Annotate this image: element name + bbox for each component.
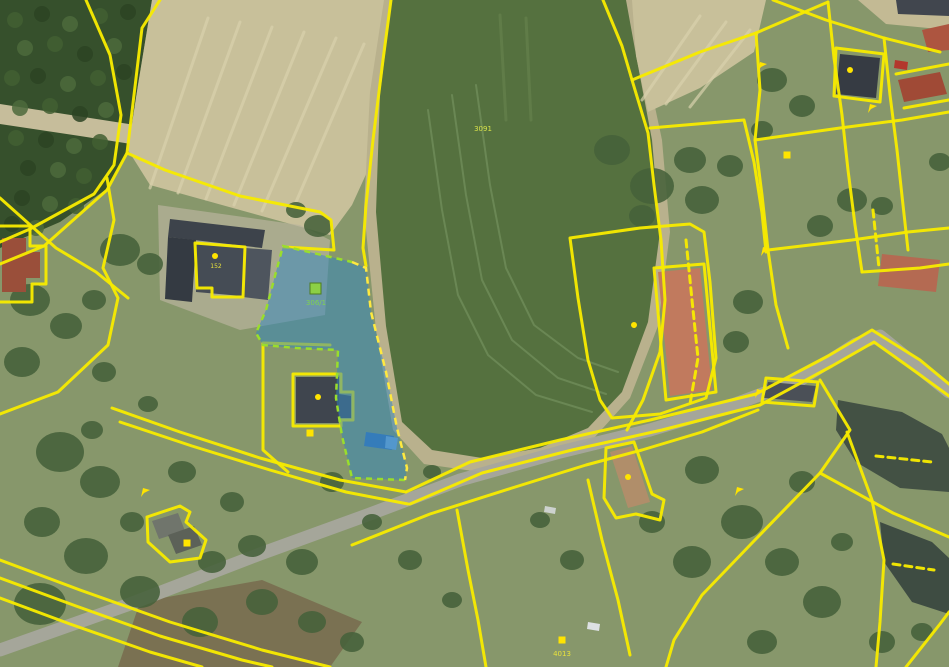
tree-canopy <box>246 589 278 615</box>
parcel-dot-icon <box>631 322 637 328</box>
tree-canopy <box>24 507 60 537</box>
farm-barn-west <box>165 237 196 302</box>
parcel-dot-icon <box>315 394 321 400</box>
forest-tree <box>38 132 54 148</box>
village-terracotta-row <box>878 254 940 292</box>
tree-canopy <box>594 135 630 165</box>
forest-tree <box>120 4 136 20</box>
forest-tree <box>116 64 132 80</box>
green-crop-field <box>376 0 660 458</box>
tree-canopy <box>733 290 763 314</box>
tree-canopy <box>717 155 743 177</box>
tree-canopy <box>803 586 841 618</box>
parcel-number-label: 4013 <box>553 650 571 658</box>
forest-tree <box>4 70 20 86</box>
farm-barn-east <box>243 248 272 300</box>
tree-canopy <box>629 205 655 227</box>
tree-canopy <box>64 538 108 574</box>
forest-tree <box>8 130 24 146</box>
tree-canopy <box>398 550 422 570</box>
parcel-square-icon <box>184 540 191 547</box>
tree-canopy <box>674 147 706 173</box>
tree-canopy <box>560 550 584 570</box>
forest-tree <box>30 68 46 84</box>
forest-tree <box>60 76 76 92</box>
cadastral-map-canvas[interactable]: 306/130914013152 <box>0 0 949 667</box>
forest-tree <box>76 168 92 184</box>
tree-canopy <box>137 253 163 275</box>
parcel-number-label: 3091 <box>474 125 492 133</box>
tree-canopy <box>789 95 815 117</box>
tree-canopy <box>80 466 120 498</box>
parcel-number-label: 152 <box>210 263 222 270</box>
forest-tree <box>77 46 93 62</box>
tree-canopy <box>81 421 103 439</box>
tree-canopy <box>4 347 40 377</box>
tree-canopy <box>530 512 550 528</box>
tree-canopy <box>442 592 462 608</box>
tree-canopy <box>869 631 895 653</box>
tree-canopy <box>220 492 244 512</box>
forest-tree <box>90 70 106 86</box>
tree-canopy <box>362 514 382 530</box>
forest-tree <box>98 102 114 118</box>
tree-canopy <box>765 548 799 576</box>
forest-tree <box>92 134 108 150</box>
selected-parcel-marker-icon <box>310 283 321 294</box>
tree-canopy <box>747 630 777 654</box>
forest-tree <box>14 190 30 206</box>
parcel-dot-icon <box>212 253 218 259</box>
tree-canopy <box>82 290 106 310</box>
tree-canopy <box>50 313 82 339</box>
forest-tree <box>7 12 23 28</box>
tree-canopy <box>238 535 266 557</box>
tree-canopy <box>685 456 719 484</box>
tree-canopy <box>807 215 833 237</box>
tree-canopy <box>92 362 116 382</box>
forest-tree <box>20 160 36 176</box>
forest-tree <box>50 162 66 178</box>
forest-tree <box>17 40 33 56</box>
tree-canopy <box>298 611 326 633</box>
forest-tree <box>66 138 82 154</box>
forest-tree <box>4 216 20 232</box>
tree-canopy <box>36 432 84 472</box>
village-dark-house-2 <box>896 0 949 16</box>
forest-tree <box>62 16 78 32</box>
tree-canopy <box>757 68 787 92</box>
forest-tree <box>47 36 63 52</box>
tree-canopy <box>340 632 364 652</box>
map-viewport[interactable]: 306/130914013152 <box>0 0 949 667</box>
parcel-square-icon <box>307 430 314 437</box>
tree-canopy <box>721 505 763 539</box>
tree-canopy <box>120 512 144 532</box>
tree-canopy <box>831 533 853 551</box>
parcel-square-icon <box>559 637 566 644</box>
parcel-house <box>296 377 339 423</box>
parcel-dot-icon <box>625 474 631 480</box>
tree-canopy <box>120 576 160 608</box>
forest-tree <box>34 6 50 22</box>
forest-tree <box>42 98 58 114</box>
tree-canopy <box>138 396 158 412</box>
parcel-dot-icon <box>847 67 853 73</box>
tree-canopy <box>168 461 196 483</box>
forest-tree <box>12 100 28 116</box>
tree-canopy <box>723 331 749 353</box>
tree-canopy <box>685 186 719 214</box>
selected-parcel-number-label: 306/1 <box>306 299 326 307</box>
tree-canopy <box>286 549 318 575</box>
forest-tree <box>42 196 58 212</box>
forest-tree <box>72 106 88 122</box>
parcel-square-icon <box>784 152 791 159</box>
village-dark-house <box>836 54 880 98</box>
tree-canopy <box>673 546 711 578</box>
